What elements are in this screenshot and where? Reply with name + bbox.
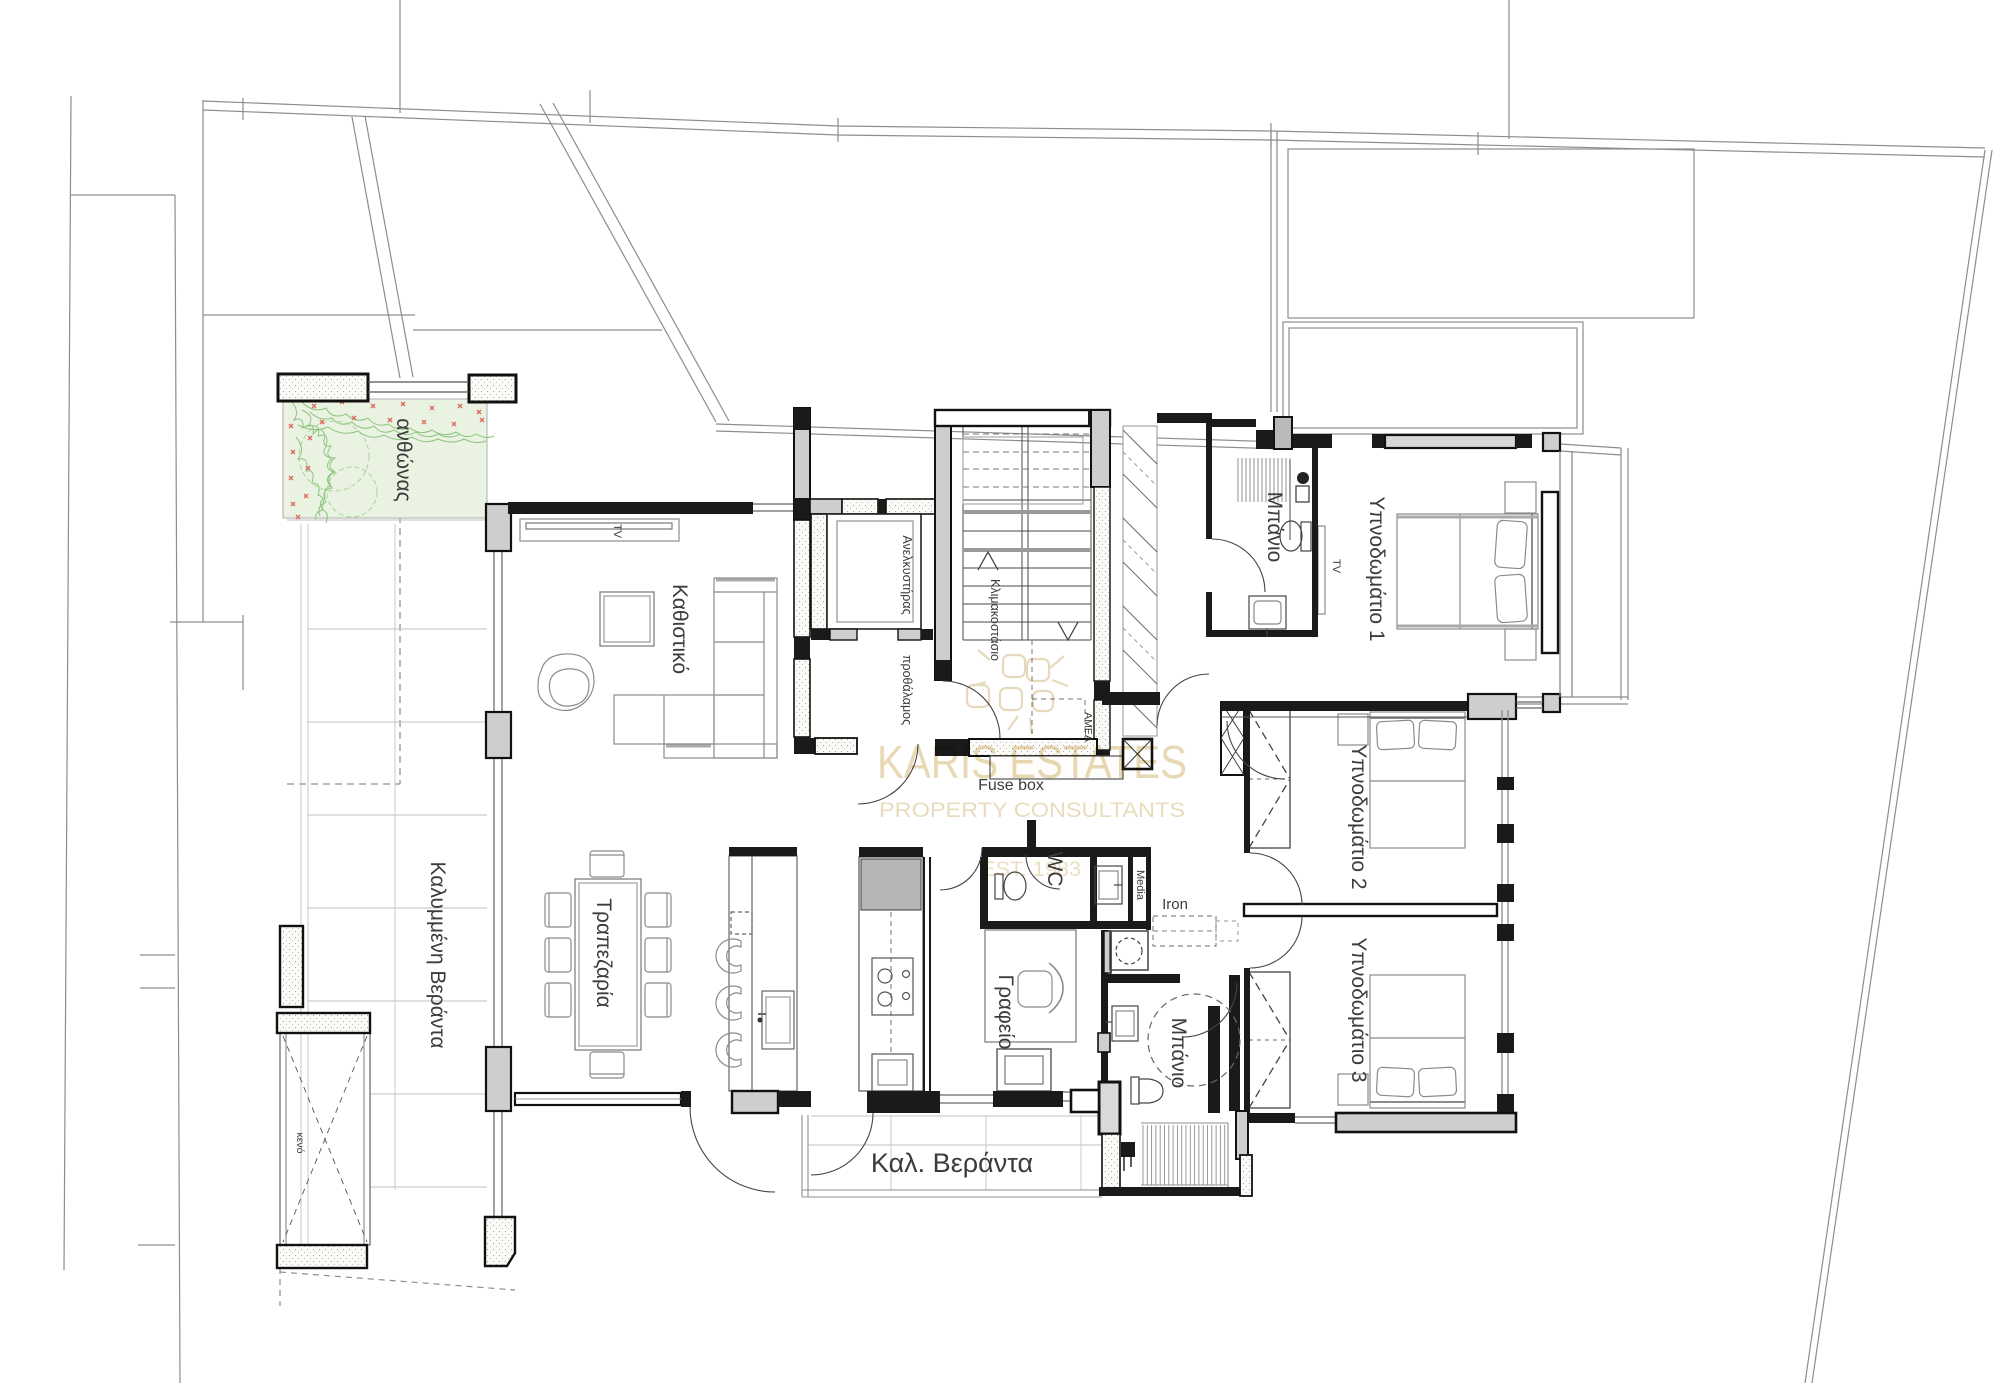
svg-text:Τραπεζαρία: Τραπεζαρία (592, 898, 615, 1008)
svg-text:KARIS ESTATES: KARIS ESTATES (877, 736, 1187, 788)
svg-text:Γραφείο: Γραφείο (994, 975, 1017, 1050)
svg-text:Ανελκυστήρας: Ανελκυστήρας (900, 535, 914, 614)
svg-text:Καλυμμένη Βεράντα: Καλυμμένη Βεράντα (426, 861, 449, 1048)
svg-text:PROPERTY CONSULTANTS: PROPERTY CONSULTANTS (879, 799, 1185, 822)
svg-text:TV: TV (611, 524, 623, 539)
svg-text:EST. 1983: EST. 1983 (981, 858, 1081, 881)
svg-text:Καλ. Βεράντα: Καλ. Βεράντα (871, 1148, 1033, 1178)
svg-text:Media: Media (1134, 870, 1146, 901)
svg-text:Μπάνιο: Μπάνιο (1263, 492, 1286, 563)
svg-text:ανθώνας: ανθώνας (392, 418, 415, 501)
svg-text:Κλιμακοστάσιο: Κλιμακοστάσιο (988, 579, 1002, 661)
svg-text:Μπάνιο: Μπάνιο (1167, 1018, 1190, 1089)
svg-text:Υπνοδωμάτιο 3: Υπνοδωμάτιο 3 (1347, 937, 1370, 1082)
svg-text:Iron: Iron (1162, 896, 1188, 913)
svg-text:προθάλαμος: προθάλαμος (900, 655, 914, 725)
svg-text:κενό: κενό (294, 1132, 306, 1153)
svg-text:Υπνοδωμάτιο 2: Υπνοδωμάτιο 2 (1347, 744, 1370, 889)
svg-text:Υπνοδωμάτιο 1: Υπνοδωμάτιο 1 (1365, 496, 1388, 641)
svg-text:TV: TV (1330, 559, 1342, 574)
svg-text:Καθιστικό: Καθιστικό (668, 584, 691, 674)
